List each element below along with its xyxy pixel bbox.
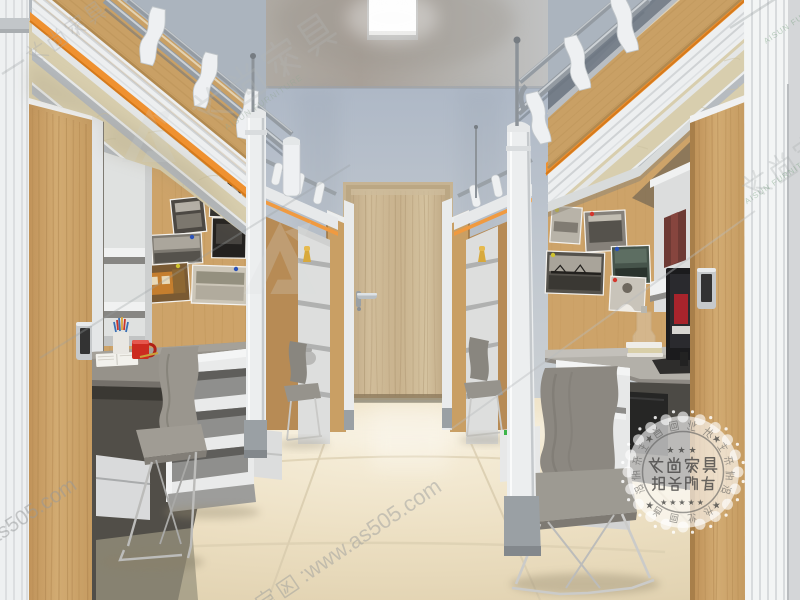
svg-text:★★★★★: ★★★★★: [660, 498, 706, 507]
svg-text:★★★: ★★★: [666, 445, 699, 455]
